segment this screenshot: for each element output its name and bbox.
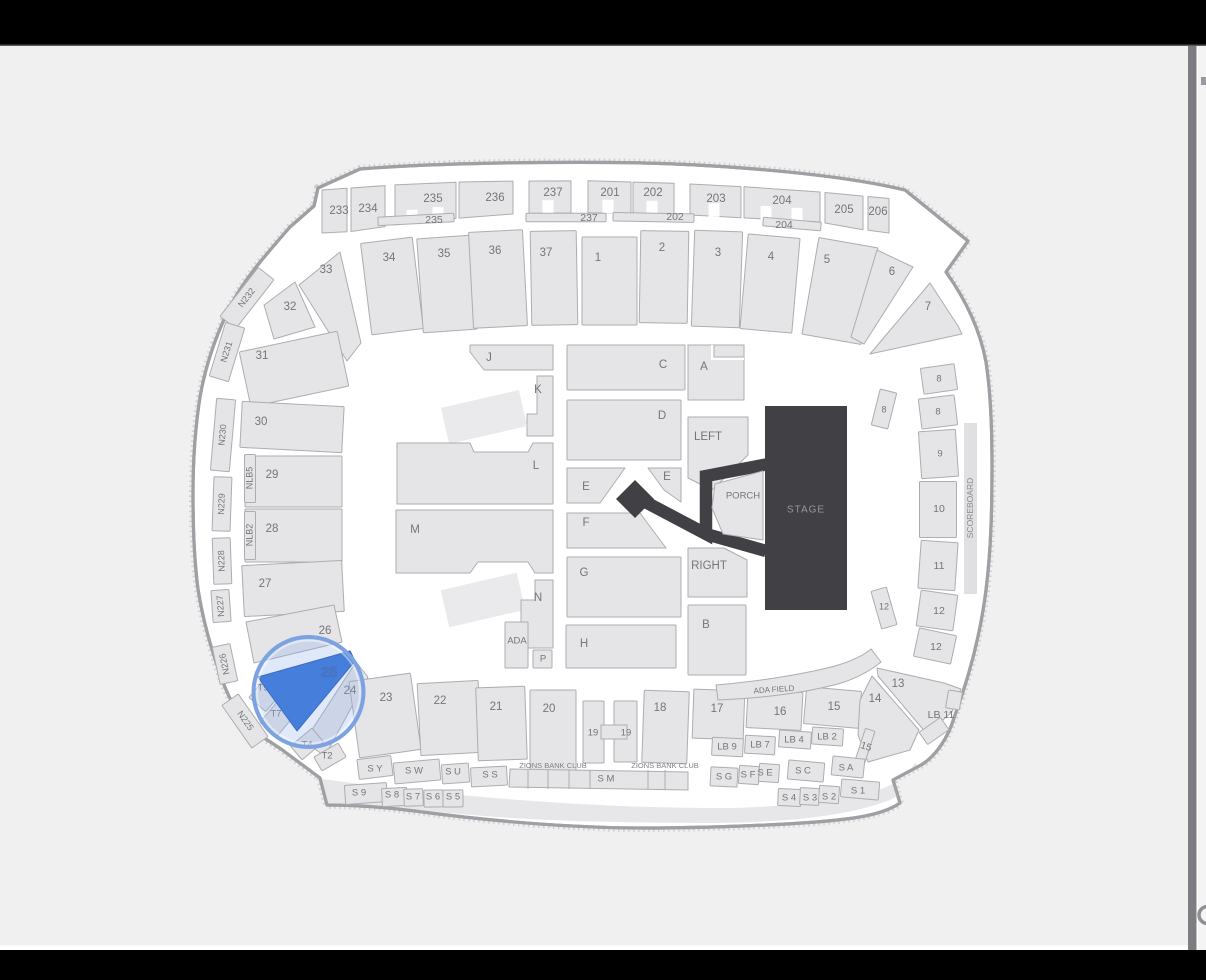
svg-text:5: 5 [824, 254, 830, 266]
svg-text:205: 205 [834, 204, 853, 216]
svg-text:2: 2 [659, 242, 665, 254]
svg-text:S W: S W [405, 766, 423, 777]
svg-text:203: 203 [706, 193, 725, 205]
svg-text:6: 6 [889, 266, 895, 278]
svg-text:36: 36 [489, 245, 502, 257]
svg-text:8: 8 [936, 374, 941, 385]
svg-text:29: 29 [266, 469, 279, 481]
svg-text:13: 13 [892, 678, 905, 690]
svg-text:27: 27 [259, 578, 272, 590]
svg-text:206: 206 [868, 206, 887, 218]
svg-text:B: B [702, 619, 710, 631]
svg-text:S F: S F [741, 770, 756, 781]
svg-text:20: 20 [543, 703, 556, 715]
svg-text:N229: N229 [216, 493, 227, 515]
svg-text:23: 23 [380, 692, 393, 704]
svg-text:M: M [410, 524, 420, 536]
svg-text:ADA: ADA [507, 636, 527, 647]
svg-text:S M: S M [598, 774, 615, 785]
svg-text:NLB2: NLB2 [244, 524, 254, 547]
svg-text:T2: T2 [321, 751, 332, 762]
svg-text:14: 14 [869, 693, 882, 705]
svg-text:ZIONS BANK CLUB: ZIONS BANK CLUB [519, 761, 587, 770]
svg-text:16: 16 [774, 706, 787, 718]
svg-text:S 7: S 7 [406, 792, 420, 803]
svg-text:E: E [663, 471, 671, 483]
svg-text:S U: S U [445, 767, 461, 778]
svg-text:235: 235 [425, 214, 443, 226]
svg-text:S G: S G [716, 772, 732, 783]
svg-text:202: 202 [643, 187, 662, 199]
svg-text:15: 15 [828, 701, 841, 713]
svg-text:G: G [580, 567, 589, 579]
svg-text:37: 37 [540, 247, 553, 259]
svg-text:236: 236 [485, 192, 504, 204]
svg-text:S 1: S 1 [851, 786, 865, 797]
svg-text:A: A [700, 361, 708, 373]
svg-text:11: 11 [934, 560, 945, 572]
svg-text:4: 4 [768, 251, 775, 263]
svg-text:RIGHT: RIGHT [691, 560, 727, 572]
svg-text:26: 26 [319, 625, 332, 637]
svg-text:201: 201 [600, 187, 619, 199]
svg-text:204: 204 [772, 195, 792, 207]
svg-text:J: J [486, 352, 492, 364]
svg-text:SCOREBOARD: SCOREBOARD [965, 478, 975, 538]
svg-text:N227: N227 [215, 595, 226, 617]
svg-text:LB 11: LB 11 [928, 709, 955, 721]
svg-text:D: D [658, 410, 666, 422]
svg-text:7: 7 [925, 301, 931, 313]
svg-text:P: P [540, 654, 546, 665]
svg-text:234: 234 [358, 203, 378, 215]
svg-text:H: H [580, 638, 588, 650]
svg-text:3: 3 [715, 247, 721, 259]
svg-text:17: 17 [711, 703, 724, 715]
svg-text:K: K [534, 384, 542, 396]
svg-text:S Y: S Y [367, 764, 383, 775]
svg-text:237: 237 [580, 212, 598, 224]
svg-text:S 5: S 5 [446, 792, 460, 803]
svg-text:C: C [659, 359, 667, 371]
svg-text:LB 2: LB 2 [817, 732, 837, 743]
svg-text:204: 204 [775, 219, 793, 231]
svg-text:28: 28 [266, 523, 279, 535]
svg-text:22: 22 [434, 695, 447, 707]
svg-text:LB 7: LB 7 [750, 740, 770, 751]
svg-text:PORCH: PORCH [726, 491, 760, 502]
svg-text:31: 31 [256, 350, 269, 362]
svg-text:9: 9 [937, 449, 942, 460]
svg-text:19: 19 [621, 728, 632, 739]
svg-text:S C: S C [795, 766, 811, 777]
svg-text:S 3: S 3 [803, 793, 817, 804]
svg-text:N: N [534, 592, 542, 604]
svg-text:32: 32 [284, 301, 297, 313]
svg-text:F: F [582, 517, 589, 529]
svg-text:NLB5: NLB5 [244, 467, 254, 490]
svg-text:S 4: S 4 [782, 793, 796, 804]
svg-text:235: 235 [423, 193, 442, 205]
svg-text:237: 237 [543, 187, 562, 199]
svg-text:30: 30 [255, 416, 268, 428]
svg-text:10: 10 [933, 503, 945, 515]
svg-text:19: 19 [588, 728, 599, 739]
svg-text:S A: S A [839, 763, 854, 774]
svg-text:ZIONS BANK CLUB: ZIONS BANK CLUB [631, 761, 699, 770]
svg-text:S 9: S 9 [352, 788, 366, 799]
svg-text:N228: N228 [216, 550, 227, 572]
svg-text:E: E [582, 481, 590, 493]
svg-text:12: 12 [933, 605, 945, 617]
svg-text:8: 8 [881, 404, 886, 414]
svg-text:33: 33 [320, 264, 333, 276]
svg-text:LB 4: LB 4 [784, 735, 804, 746]
svg-text:12: 12 [879, 601, 889, 611]
svg-text:L: L [533, 460, 540, 472]
svg-text:202: 202 [666, 211, 684, 223]
svg-text:LEFT: LEFT [694, 431, 722, 443]
svg-text:18: 18 [654, 702, 667, 714]
svg-text:34: 34 [383, 252, 396, 264]
svg-text:STAGE: STAGE [787, 505, 825, 516]
svg-text:12: 12 [930, 641, 942, 653]
svg-text:21: 21 [490, 701, 503, 713]
svg-text:S E: S E [757, 768, 772, 779]
svg-text:S 8: S 8 [385, 790, 399, 801]
svg-text:8: 8 [935, 407, 940, 418]
svg-text:LB 9: LB 9 [717, 742, 737, 753]
svg-text:S S: S S [482, 770, 497, 781]
svg-text:233: 233 [329, 205, 348, 217]
svg-text:S 6: S 6 [426, 792, 440, 803]
svg-text:N230: N230 [216, 424, 228, 446]
svg-text:35: 35 [438, 248, 451, 260]
svg-text:1: 1 [595, 252, 601, 264]
svg-text:S 2: S 2 [822, 792, 836, 803]
